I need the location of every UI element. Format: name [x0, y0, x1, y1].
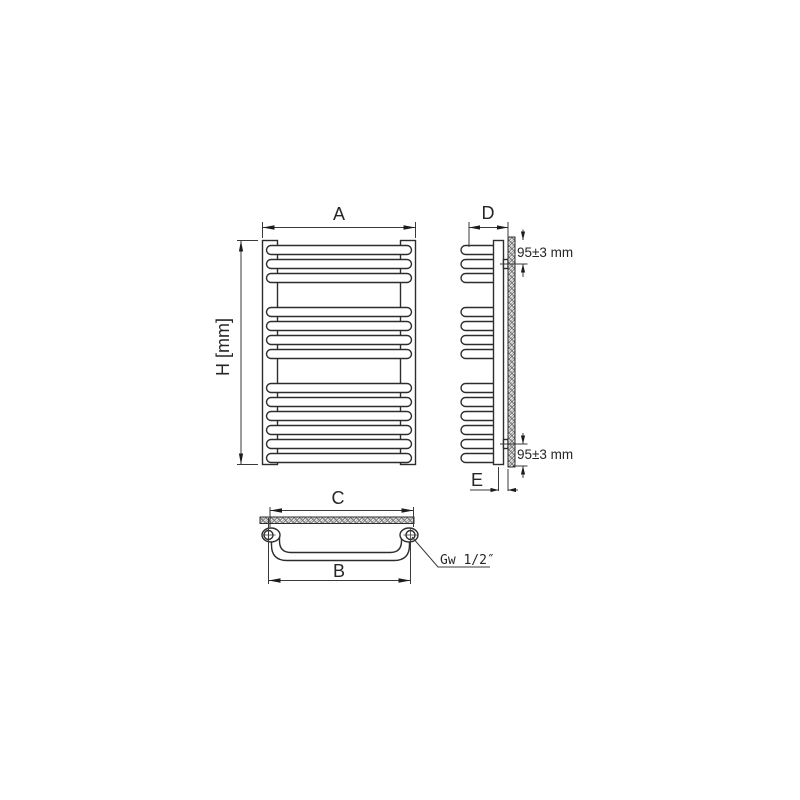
tube-stub — [461, 440, 494, 449]
label-thread: Gw 1/2″ — [440, 553, 495, 568]
tube-stub — [461, 246, 494, 255]
label-H: H [mm] — [213, 318, 233, 376]
heating-tube — [267, 350, 412, 359]
tube-stub — [461, 322, 494, 331]
heating-tube — [267, 398, 412, 407]
heating-tube — [267, 454, 412, 463]
heating-tube — [267, 274, 412, 283]
label-A: A — [333, 204, 345, 224]
tube-stub — [461, 350, 494, 359]
heating-tube — [267, 336, 412, 345]
heating-tube — [267, 412, 412, 421]
heating-tube — [267, 246, 412, 255]
plan-tube-inner — [280, 536, 402, 553]
heating-tube — [267, 426, 412, 435]
label-B: B — [333, 561, 345, 581]
dimension-A: A — [263, 204, 416, 238]
heating-tube — [267, 322, 412, 331]
tube-stub — [461, 260, 494, 269]
tube-stub — [461, 412, 494, 421]
tube-stub — [461, 308, 494, 317]
side-tube-stubs — [461, 246, 494, 463]
tube-stub — [461, 454, 494, 463]
tube-stub — [461, 398, 494, 407]
wall-section — [508, 237, 515, 467]
side-collector — [494, 241, 504, 465]
dimension-E: E — [470, 467, 518, 492]
label-E: E — [471, 470, 483, 490]
thread-callout: Gw 1/2″ — [412, 537, 495, 568]
heating-tube — [267, 260, 412, 269]
label-D: D — [482, 203, 495, 223]
heating-tube — [267, 440, 412, 449]
tube-stub — [461, 274, 494, 283]
tube-stub — [461, 336, 494, 345]
label-offset-bottom: 95±3 mm — [517, 447, 573, 462]
tube-stub — [461, 384, 494, 393]
front-view — [263, 241, 416, 465]
dimension-B: B — [269, 518, 411, 584]
heating-tube — [267, 308, 412, 317]
label-offset-top: 95±3 mm — [517, 245, 573, 260]
dimension-H: H [mm] — [213, 241, 258, 465]
tube-stub — [461, 426, 494, 435]
bottom-view — [260, 517, 418, 561]
heating-tube — [267, 384, 412, 393]
side-view — [461, 237, 515, 467]
plan-tube-outer — [272, 536, 410, 561]
label-C: C — [332, 488, 345, 508]
front-tubes — [267, 246, 412, 463]
plan-wall-section — [260, 517, 414, 524]
radiator-technical-drawing: A H [mm] D 95±3 mm 95±3 mm — [0, 0, 800, 800]
